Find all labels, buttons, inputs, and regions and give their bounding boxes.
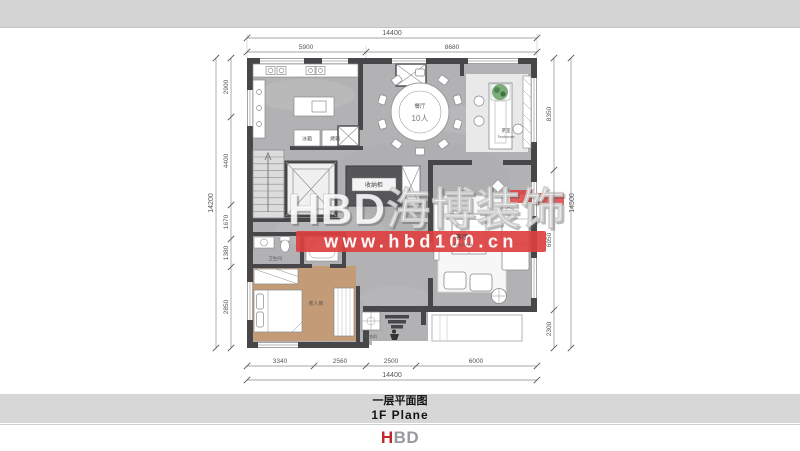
entry-step [391,325,403,329]
armchair [444,272,466,289]
dining-label: 餐厅 [414,102,426,110]
living-label-en: LIVING RM [452,242,472,247]
plan-title-cn: 一层平面图 [373,395,428,408]
entry-figure [392,330,396,334]
armchair [470,274,492,291]
stairs [253,150,284,218]
dim-right-seg2: 6950 [546,232,553,247]
watermark-brand: HBD海博装饰 [288,185,566,234]
logo-bd: BD [394,428,420,447]
dim-top: 14400 5900 8680 [244,30,540,58]
bedroom-label: 老人房 [308,300,323,307]
window [260,59,304,64]
tea-label-en: Teahouse [497,134,515,139]
tea-stool [474,96,484,106]
dim-left-overall: 14200 [208,193,215,213]
oven-label: 烤箱 [330,136,340,143]
plan-title-en: 1F Plane [371,409,428,422]
vanity [254,237,274,248]
window [258,343,298,348]
dim-left-seg3: 1670 [223,214,230,229]
dining-capacity-label: 10人 [412,114,429,123]
fridge-label: 冰箱 [302,136,312,143]
dim-right-overall: 14500 [569,193,576,213]
entry-step [388,320,406,324]
laundry-label: 洗衣机 [365,333,377,339]
dim-right-seg3: 2300 [546,321,553,336]
tea-stool [474,116,484,126]
pillow [257,312,264,327]
dim-top-overall: 14400 [382,30,402,37]
dim-bottom-overall: 14400 [382,372,402,379]
dim-bottom-seg4: 6000 [469,358,484,365]
entry-step [385,315,409,319]
dim-left-seg4: 1380 [223,245,230,260]
window [392,59,426,64]
tea-stool [513,124,523,134]
dim-bottom-seg3: 2500 [384,358,399,365]
dim-left-seg1: 2900 [223,79,230,94]
window [468,59,518,64]
floor-plan: 收纳柜 冰箱 烤箱 [0,0,800,450]
plant [492,84,508,100]
dim-left-seg5: 2850 [223,299,230,314]
tea-label: 茶室 [502,127,511,133]
watermark: HBD海博装饰 HBD海博装饰 www.hbd100.cn [288,185,568,252]
tea-cabinet [523,76,531,148]
dim-top-seg1: 5900 [299,44,314,51]
dining-table [391,83,449,141]
dim-left: 14200 2900 4400 1670 1380 2850 [208,55,234,351]
hbd-logo: HBD [381,428,419,448]
living-label: 客厅 [456,233,468,241]
logo-band: HBD [0,424,800,451]
logo-h: H [381,428,394,447]
dim-bottom: 3340 2560 2500 6000 14400 [244,358,540,383]
window [248,282,253,320]
kitchen-cabinet [253,80,265,138]
window [532,78,537,142]
porch [432,315,522,341]
dim-right-seg1: 8350 [546,106,553,121]
window [322,59,348,64]
window [248,90,253,126]
bathroom-label: 卫生间 [268,255,282,262]
pillow [257,294,264,309]
dim-bottom-seg1: 3340 [273,358,288,365]
wardrobe [334,288,354,336]
window [532,258,537,298]
dim-left-seg2: 4400 [223,153,230,168]
watermark-url: www.hbd100.cn [323,232,518,252]
toilet [281,240,290,252]
dim-top-seg2: 8680 [445,44,460,51]
kitchen-island [294,97,334,116]
dim-bottom-seg2: 2560 [333,358,348,365]
caption-band: 一层平面图 1F Plane [0,394,800,423]
